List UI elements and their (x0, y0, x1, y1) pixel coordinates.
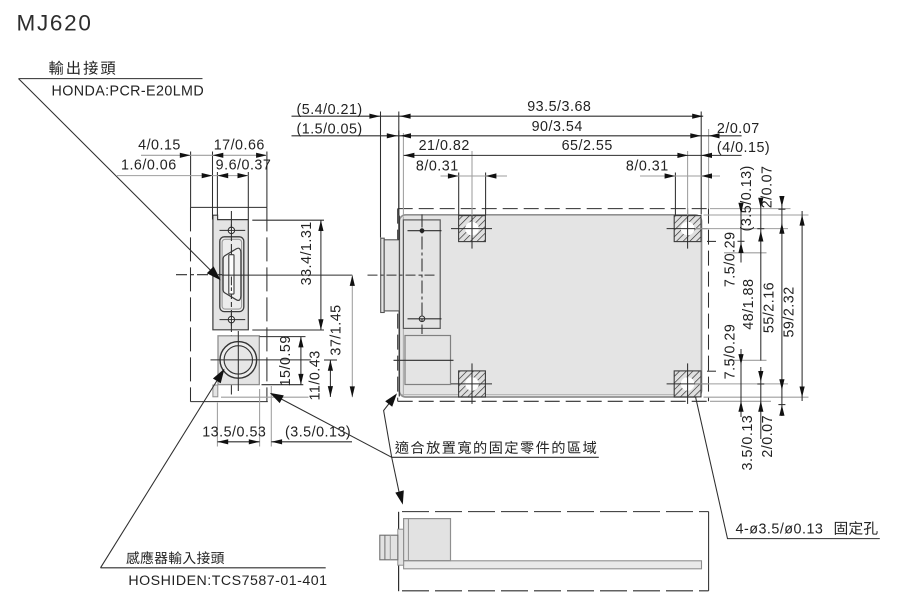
svg-text:HOSHIDEN:TCS7587-01-401: HOSHIDEN:TCS7587-01-401 (128, 573, 327, 589)
svg-text:3.5/0.13: 3.5/0.13 (740, 415, 756, 471)
svg-text:(5.4/0.21): (5.4/0.21) (297, 102, 363, 118)
svg-text:1.6/0.06: 1.6/0.06 (121, 158, 177, 174)
svg-text:59/2.32: 59/2.32 (782, 286, 798, 337)
svg-text:MJ620: MJ620 (17, 11, 93, 36)
svg-text:(3.5/0.13): (3.5/0.13) (285, 424, 351, 440)
svg-text:37/1.45: 37/1.45 (329, 304, 345, 355)
svg-text:15/0.59: 15/0.59 (278, 335, 294, 386)
svg-text:33.4/1.31: 33.4/1.31 (299, 221, 315, 285)
svg-text:9.6/0.37: 9.6/0.37 (216, 158, 272, 174)
svg-text:8/0.31: 8/0.31 (626, 158, 669, 174)
svg-text:65/2.55: 65/2.55 (562, 138, 613, 154)
svg-text:11/0.43: 11/0.43 (308, 350, 324, 400)
svg-text:48/1.88: 48/1.88 (741, 279, 757, 330)
svg-text:4-ø3.5/ø0.13: 4-ø3.5/ø0.13 (736, 521, 824, 537)
svg-text:8/0.31: 8/0.31 (416, 158, 459, 174)
svg-text:21/0.82: 21/0.82 (419, 138, 470, 154)
svg-text:55/2.16: 55/2.16 (761, 282, 777, 333)
svg-text:17/0.66: 17/0.66 (214, 137, 265, 153)
svg-text:90/3.54: 90/3.54 (532, 119, 583, 135)
svg-text:(1.5/0.05): (1.5/0.05) (297, 122, 363, 138)
svg-text:(4/0.15): (4/0.15) (717, 140, 770, 156)
svg-text:2/0.07: 2/0.07 (760, 415, 776, 458)
svg-text:2/0.07: 2/0.07 (717, 121, 760, 137)
svg-text:(3.5/0.13): (3.5/0.13) (739, 165, 755, 231)
svg-text:93.5/3.68: 93.5/3.68 (527, 99, 591, 115)
svg-text:HONDA:PCR-E20LMD: HONDA:PCR-E20LMD (52, 84, 205, 100)
svg-text:4/0.15: 4/0.15 (138, 137, 181, 153)
svg-text:7.5/0.29: 7.5/0.29 (723, 324, 739, 380)
svg-text:13.5/0.53: 13.5/0.53 (202, 424, 266, 440)
svg-text:7.5/0.29: 7.5/0.29 (723, 231, 739, 287)
